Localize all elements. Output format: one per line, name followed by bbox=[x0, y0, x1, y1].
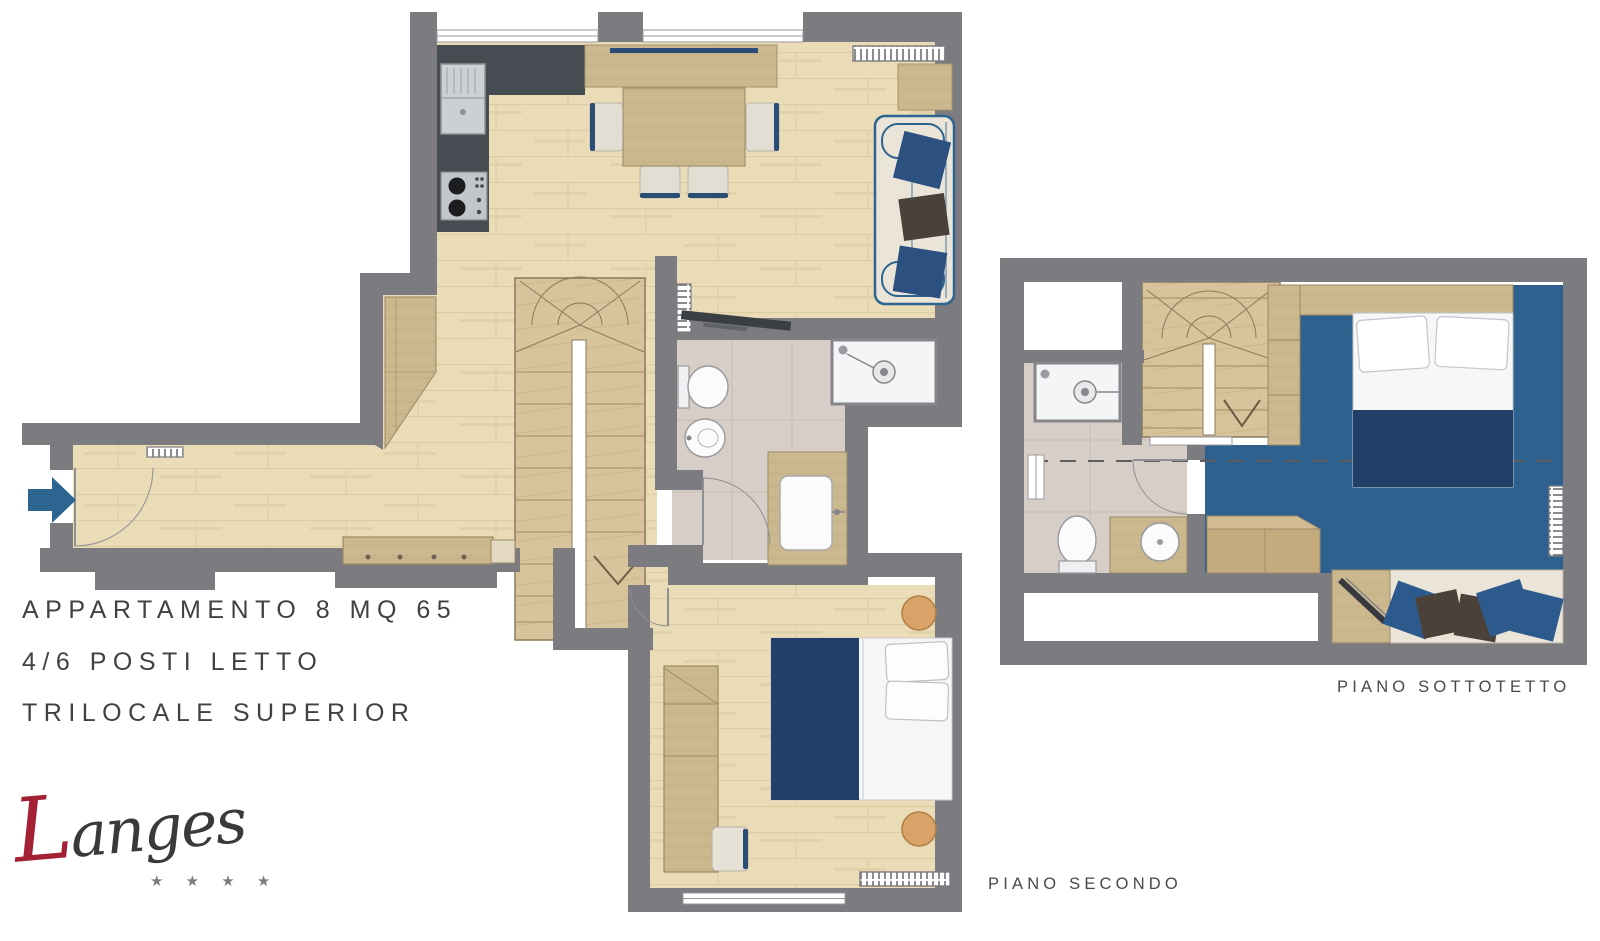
toilet-icon bbox=[1058, 516, 1096, 573]
chair-back bbox=[688, 193, 728, 198]
radiator-icon bbox=[1549, 486, 1563, 556]
hotel-stars-icon: ★ ★ ★ ★ bbox=[150, 872, 279, 890]
dining-table bbox=[623, 88, 745, 166]
stair-banister bbox=[1203, 344, 1215, 435]
bed-blanket bbox=[1353, 410, 1513, 487]
radiator-icon bbox=[853, 46, 945, 61]
wall bbox=[95, 572, 215, 590]
window bbox=[683, 893, 845, 904]
void-area bbox=[1032, 593, 1316, 641]
radiator-icon bbox=[860, 872, 950, 886]
wall bbox=[50, 523, 73, 550]
corridor-floor bbox=[73, 445, 383, 550]
plan-piano-sottotetto bbox=[1000, 258, 1587, 665]
desk-chair bbox=[712, 827, 748, 871]
attic-vanity bbox=[1110, 517, 1187, 573]
staircase-main bbox=[515, 277, 645, 640]
wall bbox=[360, 273, 412, 295]
wardrobe bbox=[664, 666, 718, 872]
wall bbox=[655, 256, 677, 482]
beds-subtitle: 4/6 POSTI LETTO bbox=[22, 648, 323, 677]
pillow bbox=[885, 681, 948, 721]
void-area bbox=[1024, 282, 1122, 350]
sideboard bbox=[585, 45, 777, 87]
pillow bbox=[885, 641, 949, 682]
attic-carpet-corner bbox=[1513, 285, 1563, 315]
radiator-icon bbox=[677, 284, 691, 332]
stair-threshold bbox=[1150, 437, 1232, 445]
caption-piano-sottotetto: PIANO SOTTOTETTO bbox=[1337, 678, 1570, 697]
daybed-lounge bbox=[1332, 570, 1564, 643]
window bbox=[437, 30, 598, 42]
double-bed bbox=[771, 638, 952, 800]
bed-headboard bbox=[1300, 285, 1513, 315]
chair-back bbox=[640, 193, 680, 198]
wall bbox=[598, 12, 643, 42]
window bbox=[643, 30, 803, 42]
wall bbox=[1000, 641, 1587, 665]
chair-back bbox=[590, 103, 595, 151]
wall bbox=[410, 12, 437, 295]
wall bbox=[22, 423, 383, 445]
bathroom-vanity bbox=[768, 452, 847, 565]
logo-initial: L bbox=[9, 775, 74, 883]
window bbox=[1028, 455, 1044, 499]
bedside-stool bbox=[902, 596, 936, 630]
wall bbox=[1122, 282, 1142, 445]
sofa-pillow bbox=[898, 193, 949, 241]
wall bbox=[1187, 514, 1205, 577]
wall bbox=[1563, 258, 1587, 665]
wall bbox=[1000, 258, 1024, 665]
apartment-title: APPARTAMENTO 8 MQ 65 bbox=[22, 596, 457, 625]
type-subtitle: TRILOCALE SUPERIOR bbox=[22, 699, 415, 728]
shower-icon bbox=[1035, 363, 1120, 421]
bidet-icon bbox=[685, 419, 725, 457]
wall bbox=[628, 585, 650, 890]
double-bed bbox=[1353, 313, 1513, 487]
wall bbox=[628, 545, 703, 567]
logo-rest: anges bbox=[67, 784, 248, 872]
hallway-bench bbox=[343, 537, 515, 564]
entrance-arrow-icon bbox=[28, 477, 76, 523]
pillow bbox=[1435, 316, 1510, 370]
radiator-icon bbox=[147, 447, 183, 457]
wall bbox=[1000, 258, 1587, 282]
wall bbox=[1318, 573, 1332, 643]
wall bbox=[1024, 573, 1320, 593]
wooden-chest bbox=[1207, 516, 1320, 573]
sofa-pillow bbox=[893, 246, 948, 299]
wall bbox=[360, 293, 383, 430]
chair-back bbox=[774, 103, 779, 151]
floorplan-sheet: APPARTAMENTO 8 MQ 65 4/6 POSTI LETTO TRI… bbox=[0, 0, 1600, 941]
wardrobe bbox=[1268, 285, 1300, 445]
shower-icon bbox=[832, 340, 936, 404]
side-table bbox=[898, 64, 952, 110]
wall bbox=[50, 445, 73, 470]
stove-icon bbox=[441, 172, 487, 220]
pillow bbox=[1356, 316, 1429, 373]
wall bbox=[655, 470, 703, 490]
sink-icon bbox=[780, 476, 832, 550]
staircase-attic bbox=[1142, 282, 1280, 445]
caption-piano-secondo: PIANO SECONDO bbox=[988, 875, 1182, 894]
toilet-icon bbox=[678, 366, 728, 408]
wall bbox=[1187, 445, 1205, 460]
kitchen-sink-icon bbox=[441, 64, 485, 134]
bedside-stool bbox=[902, 812, 936, 846]
